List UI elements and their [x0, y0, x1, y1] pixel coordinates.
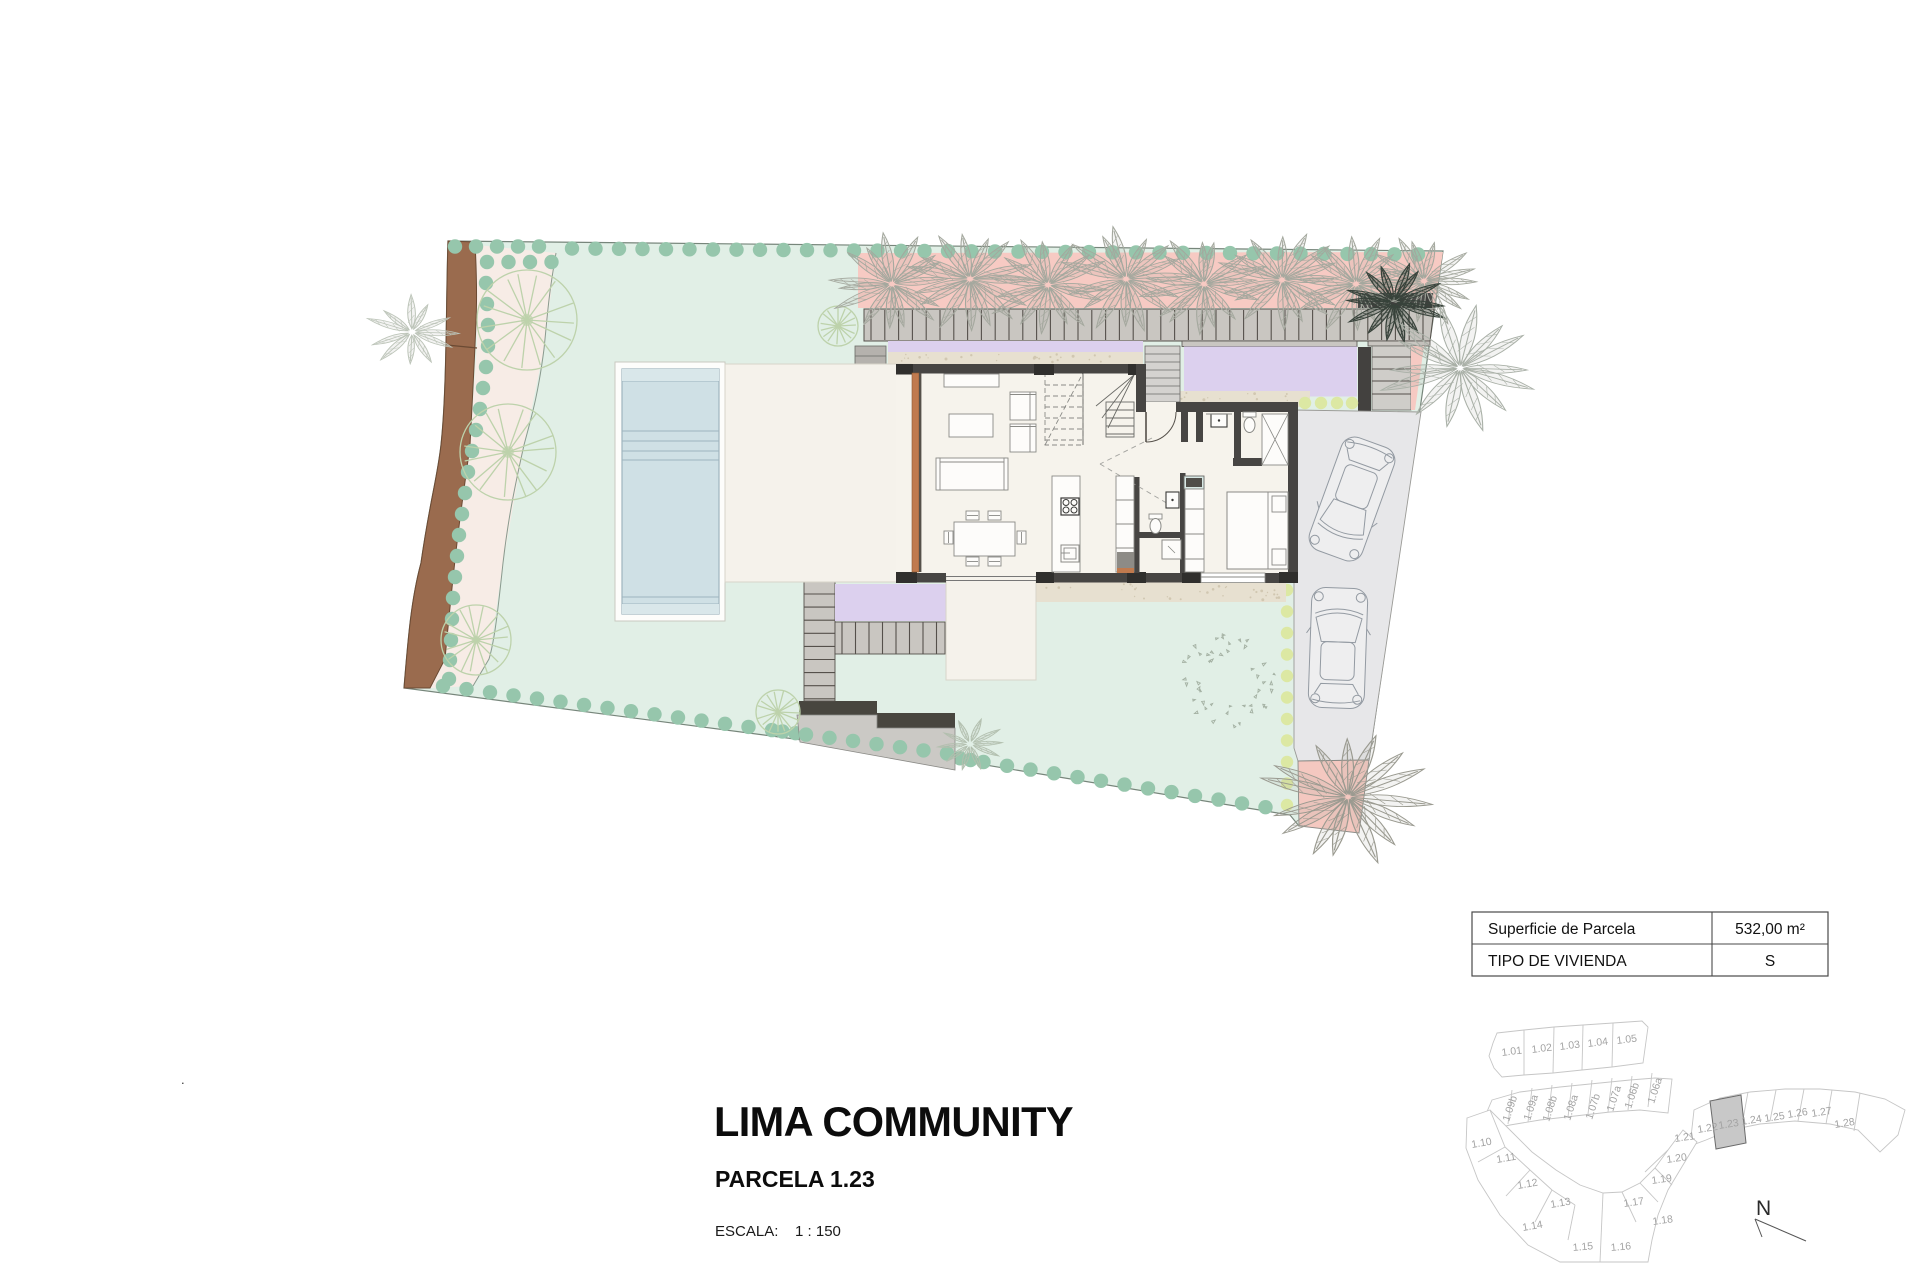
svg-text:.: . — [181, 1072, 185, 1087]
svg-text:1.01: 1.01 — [1501, 1045, 1523, 1059]
svg-text:1.03: 1.03 — [1559, 1039, 1581, 1053]
svg-text:N: N — [1756, 1197, 1771, 1220]
svg-text:1.15: 1.15 — [1572, 1240, 1594, 1254]
svg-text:1.20: 1.20 — [1666, 1151, 1688, 1166]
svg-text:PARCELA 1.23: PARCELA 1.23 — [715, 1166, 875, 1192]
svg-text:S: S — [1765, 953, 1775, 970]
svg-text:1.02: 1.02 — [1531, 1042, 1553, 1056]
svg-text:1.16: 1.16 — [1610, 1240, 1632, 1254]
svg-text:ESCALA: 1 : 150: ESCALA: 1 : 150 — [715, 1223, 841, 1240]
svg-text:1.18: 1.18 — [1652, 1213, 1674, 1228]
svg-text:1.04: 1.04 — [1587, 1036, 1609, 1050]
svg-text:LIMA COMMUNITY: LIMA COMMUNITY — [714, 1098, 1074, 1145]
svg-text:532,00 m²: 532,00 m² — [1735, 921, 1805, 938]
svg-text:1.25: 1.25 — [1764, 1110, 1786, 1125]
svg-text:TIPO DE VIVIENDA: TIPO DE VIVIENDA — [1488, 953, 1627, 970]
svg-text:1.05: 1.05 — [1616, 1033, 1638, 1047]
svg-text:1.24: 1.24 — [1741, 1113, 1763, 1128]
svg-text:Superficie de Parcela: Superficie de Parcela — [1488, 921, 1636, 938]
